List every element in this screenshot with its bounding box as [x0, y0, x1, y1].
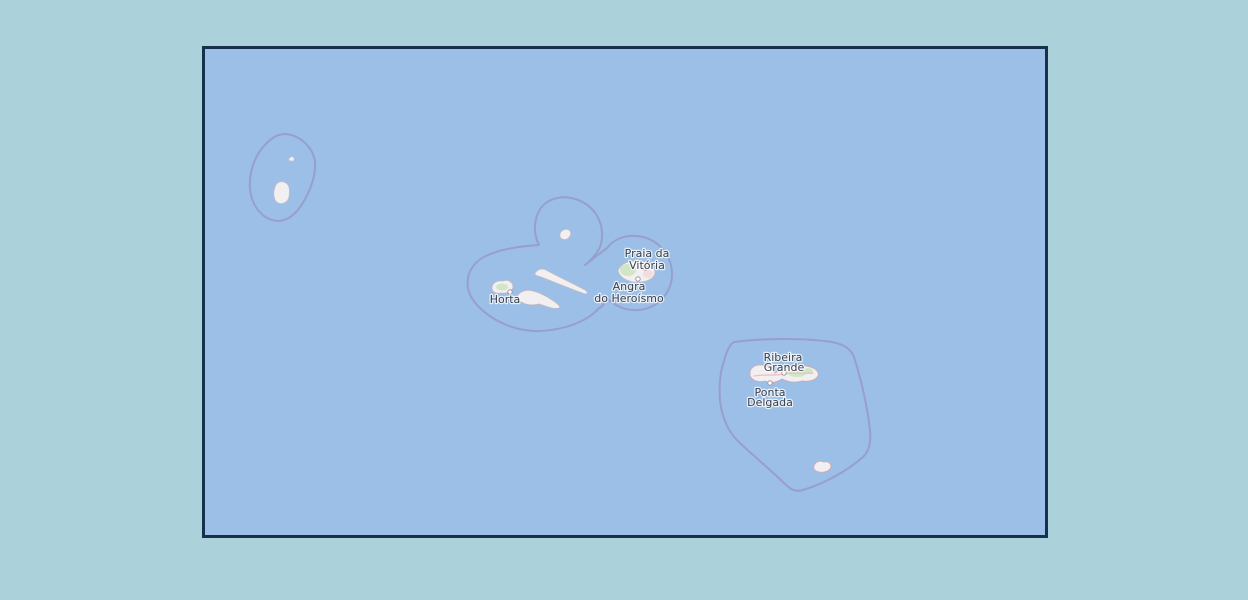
island-santa-maria [814, 461, 831, 472]
island-corvo [289, 157, 295, 162]
label-ponta-delgada: Ponta Delgada [747, 386, 793, 409]
label-ribeira-grande-line2: Grande [764, 361, 805, 374]
label-horta-line1: Horta [490, 293, 521, 306]
island-sao-jorge [535, 269, 587, 294]
island-flores [274, 182, 290, 204]
page-background: Praia da Vitória Angra do Heroísmo Horta… [0, 0, 1248, 600]
map-viewport[interactable]: Praia da Vitória Angra do Heroísmo Horta… [202, 46, 1048, 538]
faial-green-area [496, 284, 508, 291]
boundary-western-group [250, 134, 315, 221]
island-graciosa [560, 229, 571, 239]
island-pico [517, 290, 560, 308]
label-angra-line2: do Heroísmo [594, 292, 664, 305]
map-svg: Praia da Vitória Angra do Heroísmo Horta… [205, 49, 1045, 535]
label-angra-do-heroismo: Angra do Heroísmo [594, 280, 664, 305]
label-ribeira-grande: Ribeira Grande [764, 351, 805, 374]
label-ponta-delgada-line2: Delgada [747, 396, 793, 409]
label-horta: Horta [490, 293, 521, 306]
marker-ponta-delgada [768, 381, 772, 385]
label-praia-da-vitoria-line2: Vitória [629, 259, 665, 272]
label-praia-da-vitoria: Praia da Vitória [625, 247, 670, 272]
